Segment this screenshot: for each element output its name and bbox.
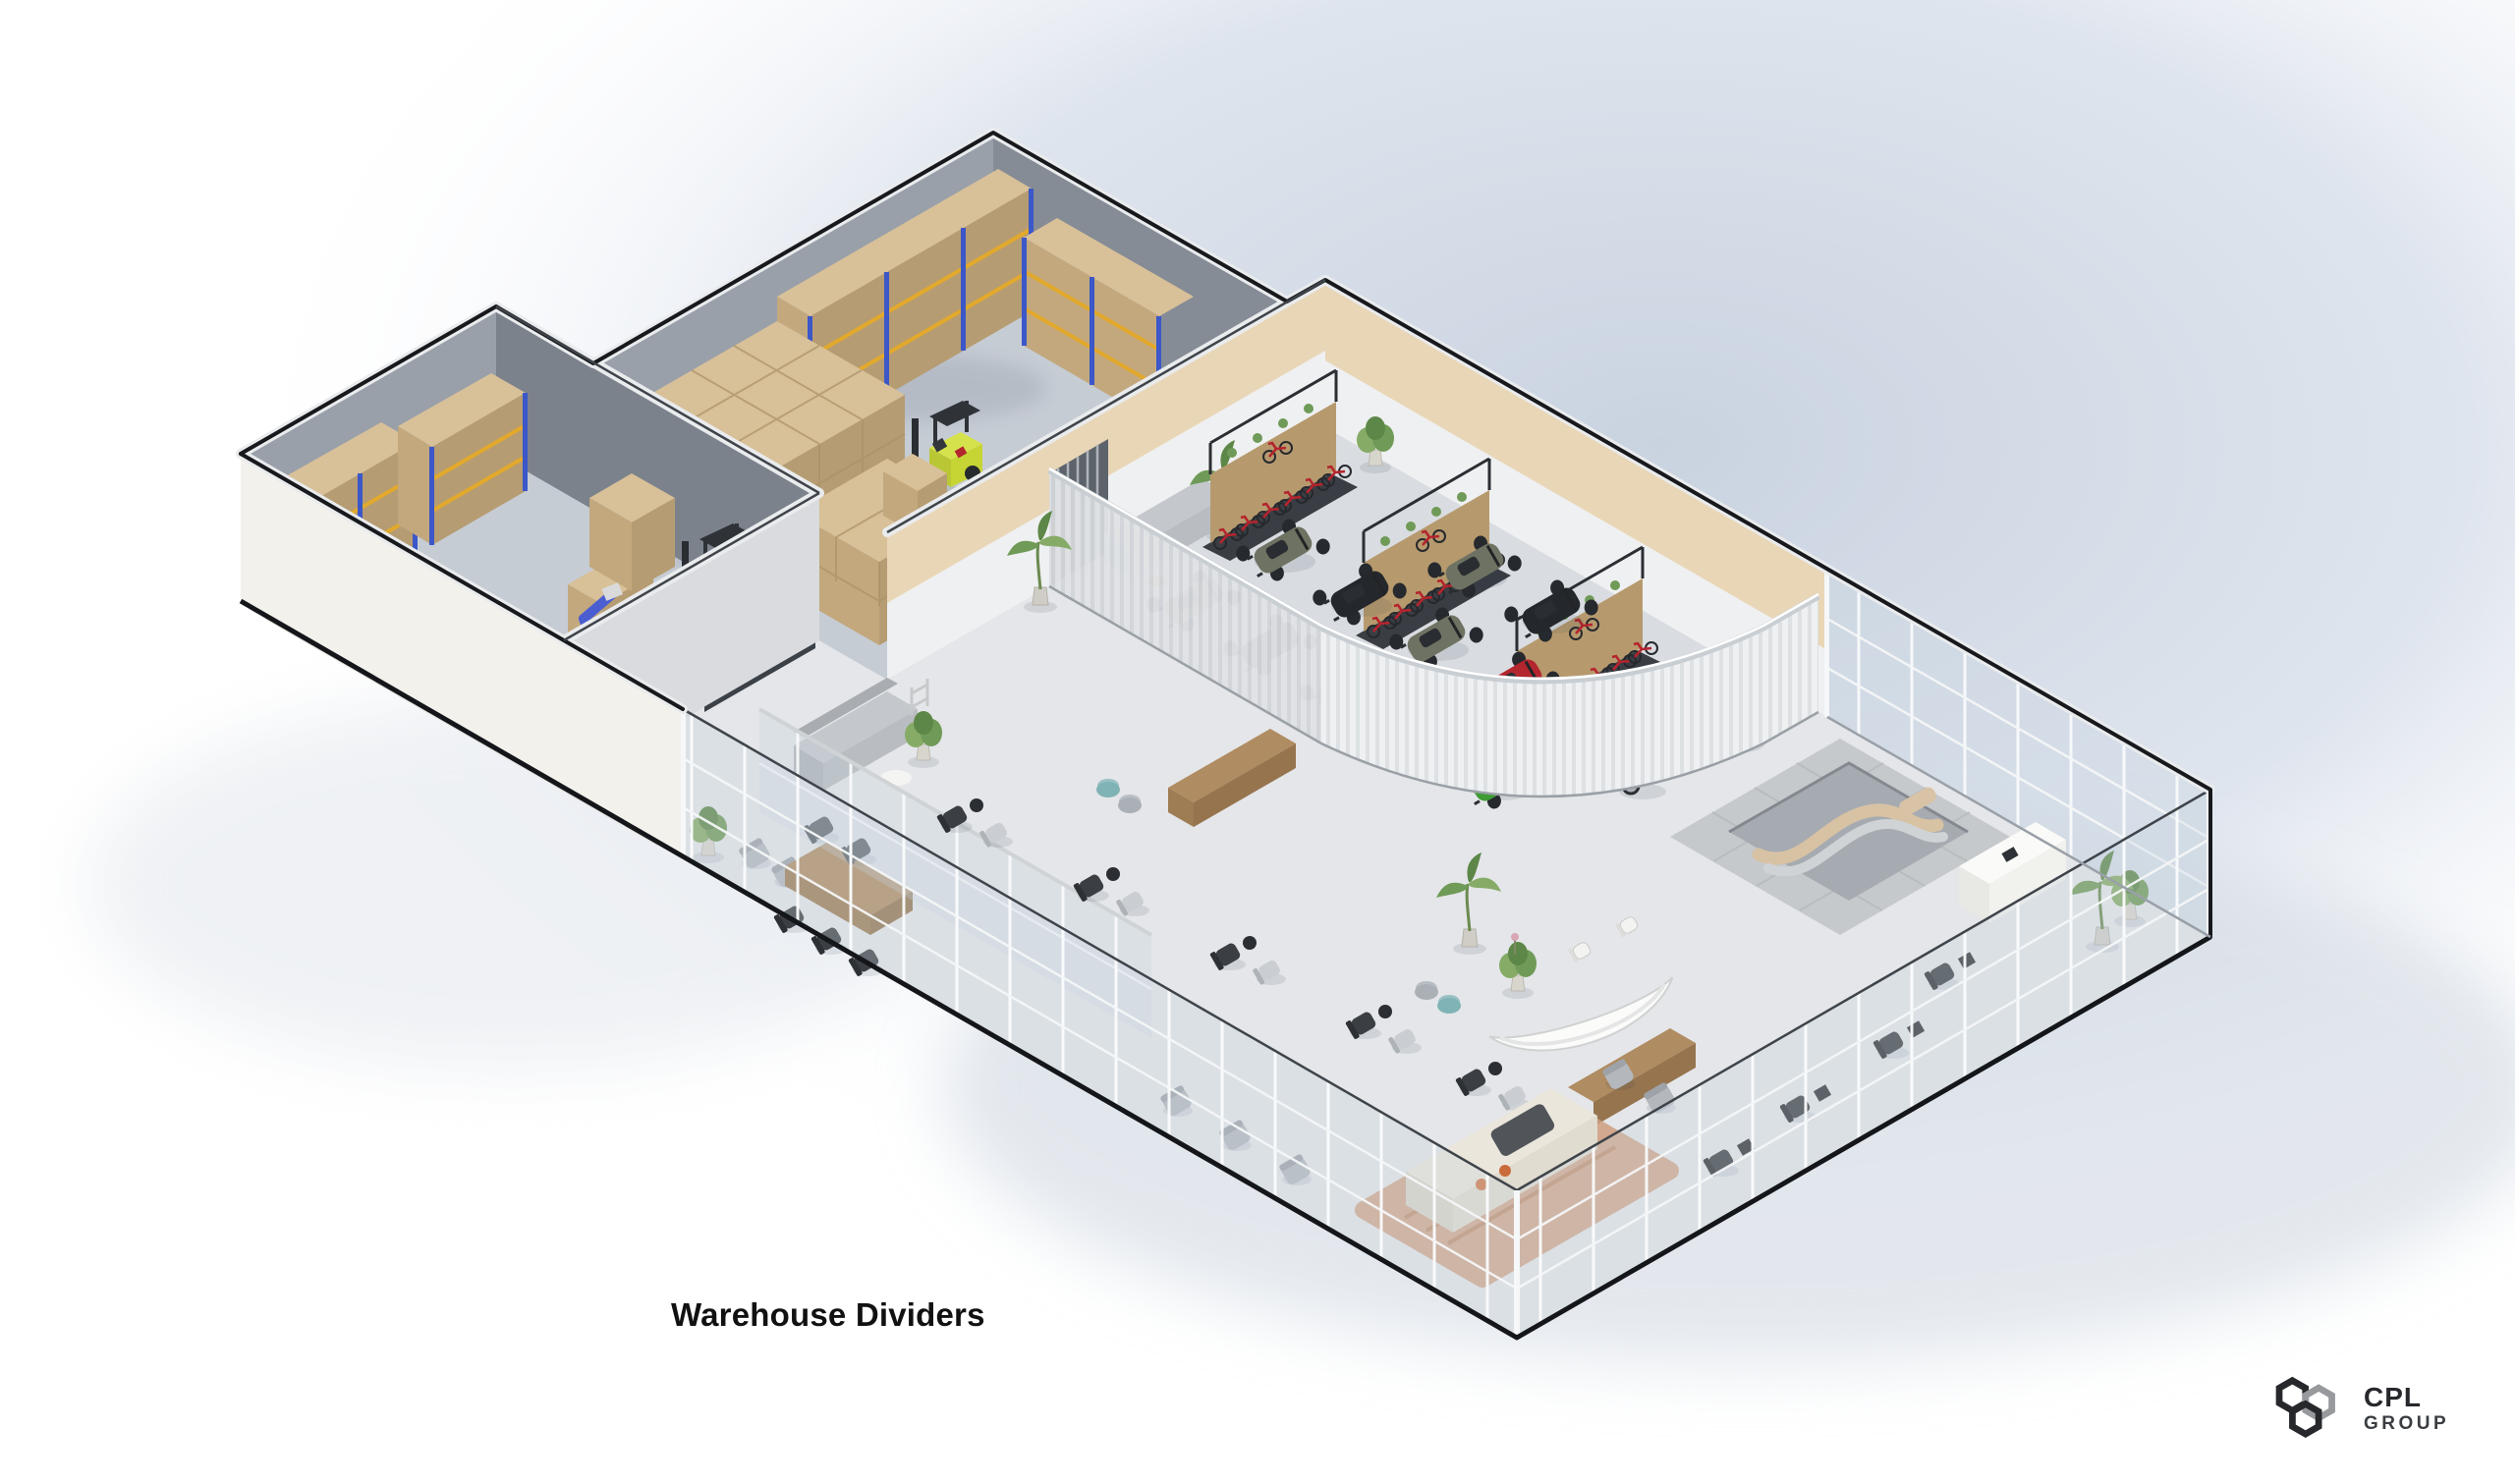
box-stack [589,473,675,591]
warehouse-scene [0,0,2515,1484]
cpl-group-logo: CPL GROUP [2267,1371,2449,1446]
pouf [1437,995,1461,1014]
diagram-title: Warehouse Dividers [671,1296,985,1334]
warehouse-dividers-page: Warehouse Dividers CPL GROUP [0,0,2515,1484]
cpl-logo-hexagons-icon [2267,1371,2354,1446]
flower-vase [1511,933,1519,941]
logo-line1: CPL [2364,1384,2449,1411]
pouf [1415,981,1438,1000]
pouf [1096,779,1120,797]
logo-line2: GROUP [2364,1414,2449,1433]
pouf [1118,795,1142,813]
